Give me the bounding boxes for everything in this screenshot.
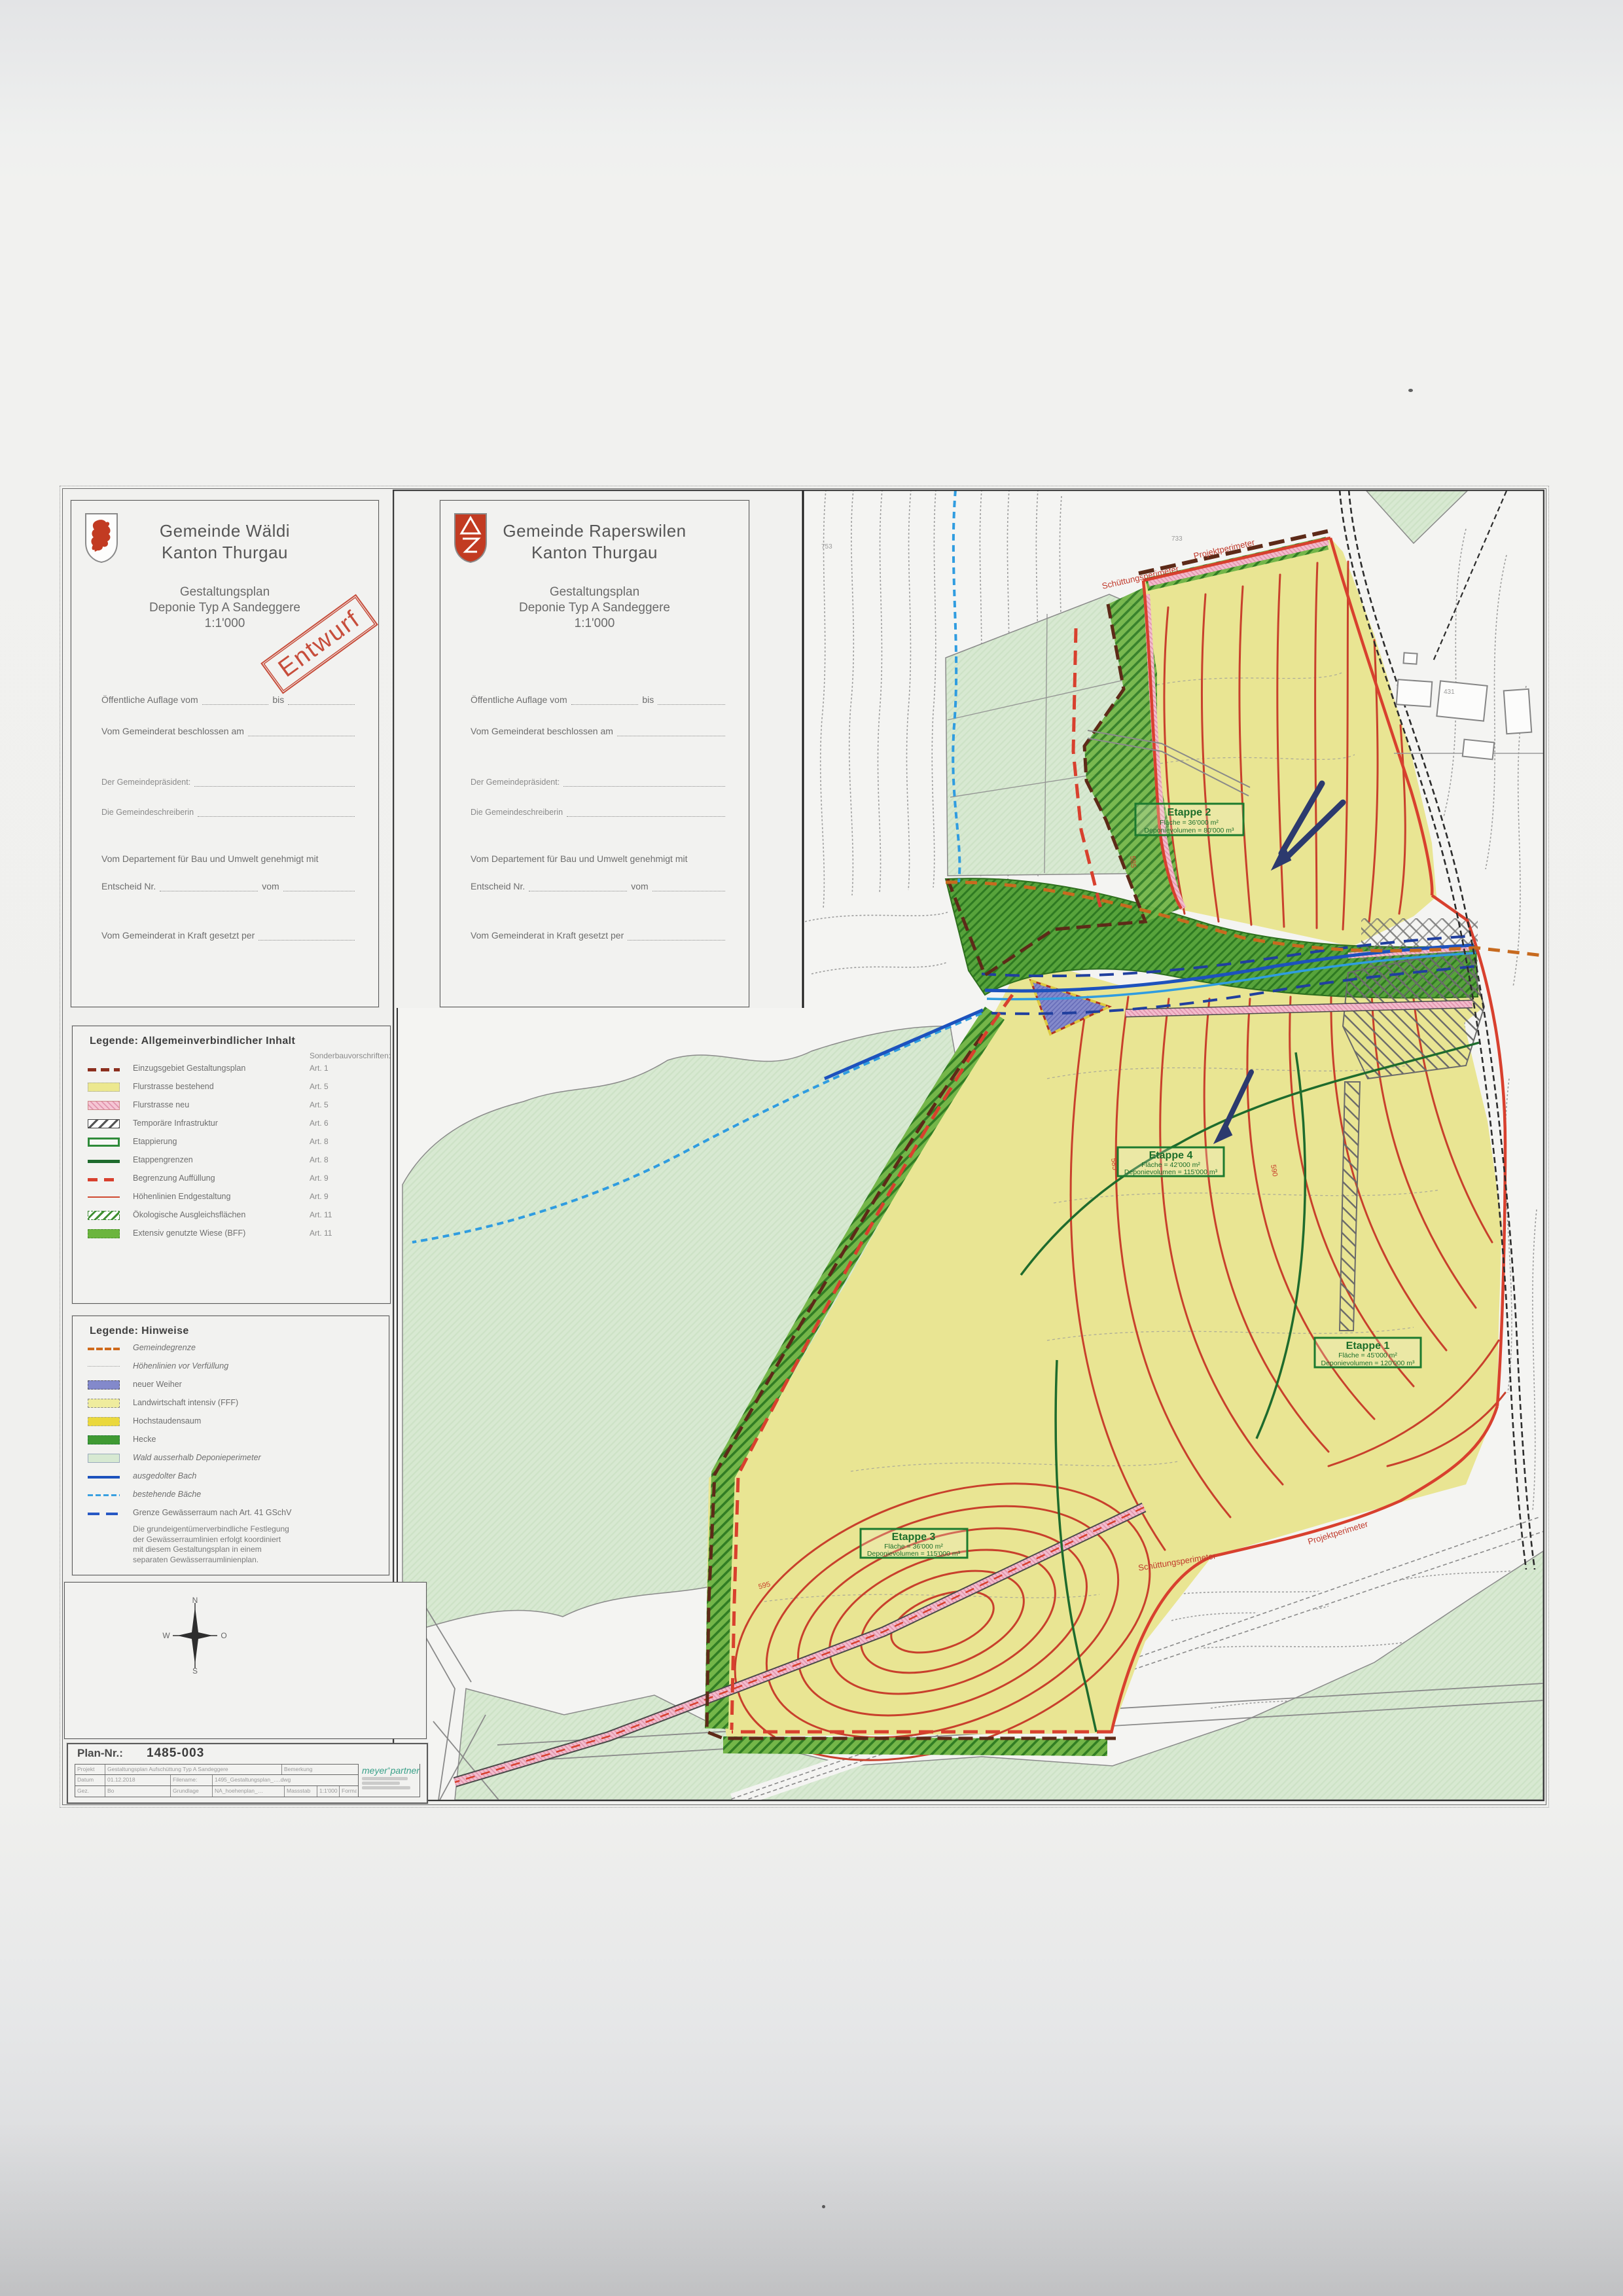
field-inkraft: Vom Gemeinderat in Kraft gesetzt per	[471, 930, 729, 941]
legend-art: Art. 8	[310, 1155, 329, 1164]
etappe-4-label: Etappe 4 Fläche = 42'000 m² Deponievolum…	[1118, 1147, 1224, 1176]
blue-long-dash-line-swatch	[88, 1513, 120, 1515]
plan-title: Gestaltungsplan Deponie Typ A Sandeggere…	[440, 584, 749, 632]
legend-item: Flurstrasse neu Art. 5	[73, 1100, 390, 1114]
table-cell: Datum	[75, 1775, 105, 1785]
field-beschlossen: Vom Gemeinderat beschlossen am	[471, 726, 729, 736]
green-fill-swatch	[88, 1229, 120, 1238]
red-dashed-line-swatch	[88, 1178, 120, 1181]
yellow-fill-swatch	[88, 1417, 120, 1426]
field-beschlossen: Vom Gemeinderat beschlossen am	[101, 726, 359, 736]
gemeinde-title: Gemeinde Raperswilen Kanton Thurgau	[440, 520, 749, 564]
legend-item: Landwirtschaft intensiv (FFF)	[73, 1397, 389, 1412]
blue-line-swatch	[88, 1476, 120, 1479]
legend-label: Höhenlinien Endgestaltung	[133, 1192, 230, 1201]
field-label: Vom Gemeinderat in Kraft gesetzt per	[471, 930, 624, 941]
legend-item: Höhenlinien Endgestaltung Art. 9	[73, 1191, 390, 1206]
legend-label: ausgedolter Bach	[133, 1471, 196, 1480]
legend-art: Art. 8	[310, 1137, 329, 1146]
legend-label: neuer Weiher	[133, 1380, 182, 1389]
plan-name: Deponie Typ A Sandeggere	[440, 600, 749, 616]
field-label: Entscheid Nr.	[471, 881, 525, 891]
table-cell: 1495_Gestaltungsplan_….dwg	[213, 1775, 357, 1785]
etappe-area: Fläche = 36'000 m²	[1160, 819, 1219, 827]
field-label: vom	[631, 881, 648, 891]
parcel-number: 431	[1444, 689, 1455, 696]
table-cell: Format	[340, 1786, 357, 1797]
etappe-name: Etappe 2	[1168, 807, 1211, 818]
plan-number-block: Plan-Nr.: 1485-003 Projekt Gestaltungspl…	[67, 1743, 428, 1804]
legend-item: Flurstrasse bestehend Art. 5	[73, 1081, 390, 1096]
field-inkraft: Vom Gemeinderat in Kraft gesetzt per	[101, 930, 359, 941]
etappe-volume: Deponievolumen = 115'000 m³	[867, 1550, 961, 1558]
note-line: Die grundeigentümerverbindliche Festlegu…	[133, 1524, 289, 1535]
legend-art: Art. 11	[310, 1229, 332, 1238]
legend-label: Etappengrenzen	[133, 1155, 193, 1164]
field-label: Vom Departement für Bau und Umwelt geneh…	[471, 853, 688, 864]
field-praesident: Der Gemeindepräsident:	[471, 778, 729, 787]
legend-column-header: Sonderbauvorschriften:	[310, 1051, 391, 1060]
legend-item: Grenze Gewässerraum nach Art. 41 GSchV	[73, 1507, 389, 1522]
plan-table-row: Datum 01.12.2018 Filename: 1495_Gestaltu…	[75, 1775, 359, 1786]
compass-n: N	[192, 1596, 198, 1605]
compass-box: N W O S	[64, 1582, 427, 1739]
scanned-plan-page: Schüttungsperimeter Projektperimeter Sch…	[0, 0, 1623, 2296]
legend-label: Gemeindegrenze	[133, 1343, 196, 1352]
field-label: Entscheid Nr.	[101, 881, 156, 891]
table-cell: NA_hoehenplan_…	[213, 1786, 285, 1797]
plan-nr-value: 1485-003	[147, 1746, 204, 1761]
etappe-area: Fläche = 45'000 m²	[1338, 1352, 1397, 1359]
field-label: Öffentliche Auflage vom	[471, 694, 567, 705]
parcel-number: 733	[1171, 535, 1183, 543]
table-cell: Gestaltungsplan Aufschüttung Typ A Sande…	[105, 1765, 282, 1774]
etappe-1-label: Etappe 1 Fläche = 45'000 m² Deponievolum…	[1315, 1338, 1421, 1367]
plan-nr-label: Plan-Nr.:	[77, 1747, 123, 1760]
etappe-volume: Deponievolumen = 115'000 m³	[1124, 1168, 1218, 1176]
legend-item: Extensiv genutzte Wiese (BFF) Art. 11	[73, 1228, 390, 1242]
etappe-3-label: Etappe 3 Fläche = 36'000 m² Deponievolum…	[861, 1529, 967, 1558]
logo-right: partner	[391, 1765, 419, 1776]
etappe-name: Etappe 3	[892, 1532, 936, 1543]
etappe-name: Etappe 1	[1346, 1340, 1390, 1352]
light-blue-dashed-line-swatch	[88, 1494, 120, 1496]
plan-table-row: Gez. Bo Grundlage NA_hoehenplan_… Massst…	[75, 1786, 359, 1797]
legend-label: Temporäre Infrastruktur	[133, 1119, 218, 1128]
yellow-fill-swatch	[88, 1083, 120, 1092]
scan-speck	[1408, 389, 1413, 392]
field-auflage: Öffentliche Auflage vombis	[471, 694, 729, 705]
legend-item: Etappierung Art. 8	[73, 1136, 390, 1151]
firm-logo: meyer+partner	[362, 1765, 416, 1776]
field-label: Vom Gemeinderat in Kraft gesetzt per	[101, 930, 255, 941]
legend-label: Flurstrasse bestehend	[133, 1082, 214, 1091]
title-block-waeldi: Gemeinde Wäldi Kanton Thurgau Gestaltung…	[71, 500, 379, 1007]
pink-hatch-swatch	[88, 1101, 120, 1110]
legend-item: Wald ausserhalb Deponieperimeter	[73, 1452, 389, 1467]
field-label: Der Gemeindepräsident:	[101, 778, 190, 787]
legend-label: Landwirtschaft intensiv (FFF)	[133, 1398, 238, 1407]
field-label: bis	[272, 694, 284, 705]
legend-label: bestehende Bäche	[133, 1490, 201, 1499]
field-departement: Vom Departement für Bau und Umwelt geneh…	[471, 853, 729, 864]
legend-label: Flurstrasse neu	[133, 1100, 189, 1109]
dark-red-dashed-line-swatch	[88, 1068, 120, 1071]
legend-label: Höhenlinien vor Verfüllung	[133, 1361, 228, 1371]
legend-item: Einzugsgebiet Gestaltungsplan Art. 1	[73, 1063, 390, 1077]
legend-art: Art. 9	[310, 1174, 329, 1183]
green-fill-swatch	[88, 1435, 120, 1444]
orange-line-swatch	[88, 1348, 120, 1350]
plan-type: Gestaltungsplan	[71, 584, 378, 600]
legend-label: Hochstaudensaum	[133, 1416, 201, 1426]
legend-art: Art. 5	[310, 1100, 329, 1109]
table-cell: Grundlage	[171, 1786, 213, 1797]
table-cell: Gez.	[75, 1786, 105, 1797]
legend-label: Wald ausserhalb Deponieperimeter	[133, 1453, 261, 1462]
green-outline-swatch	[88, 1138, 120, 1147]
legend-item: Hecke	[73, 1434, 389, 1448]
field-entscheid: Entscheid Nr.vom	[471, 881, 729, 891]
field-label: bis	[642, 694, 654, 705]
note-line: der Gewässerraumlinien erfolgt koordinie…	[133, 1535, 289, 1545]
legend-art: Art. 9	[310, 1192, 329, 1201]
red-thin-line-swatch	[88, 1196, 120, 1198]
legend-item: Hochstaudensaum	[73, 1416, 389, 1430]
field-label: Öffentliche Auflage vom	[101, 694, 198, 705]
note-line: separaten Gewässerraumlinienplan.	[133, 1555, 289, 1566]
legend-item: Höhenlinien vor Verfüllung	[73, 1361, 389, 1375]
legend-label: Grenze Gewässerraum nach Art. 41 GSchV	[133, 1508, 291, 1517]
legend-art: Art. 11	[310, 1210, 332, 1219]
legend-art: Art. 6	[310, 1119, 329, 1128]
field-label: Der Gemeindepräsident:	[471, 778, 560, 787]
table-cell: 01.12.2018	[105, 1775, 171, 1785]
legend-note: Die grundeigentümerverbindliche Festlegu…	[133, 1524, 289, 1565]
blue-violet-fill-swatch	[88, 1380, 120, 1390]
table-cell: 1:1'000	[317, 1786, 340, 1797]
field-entscheid: Entscheid Nr.vom	[101, 881, 359, 891]
legend-art: Art. 1	[310, 1064, 329, 1073]
legend-label: Einzugsgebiet Gestaltungsplan	[133, 1064, 245, 1073]
legend-art: Art. 5	[310, 1082, 329, 1091]
legend-item: Ökologische Ausgleichsflächen Art. 11	[73, 1210, 390, 1224]
table-cell: Bemerkung	[282, 1765, 357, 1774]
field-label: Die Gemeindeschreiberin	[471, 808, 563, 817]
illegible-text-bar	[362, 1786, 410, 1789]
legend-item: Etappengrenzen Art. 8	[73, 1155, 390, 1169]
field-departement: Vom Departement für Bau und Umwelt geneh…	[101, 853, 359, 864]
field-label: vom	[262, 881, 279, 891]
scan-shadow-band	[0, 2121, 1623, 2296]
legend-hints: Legende: Hinweise Gemeindegrenze Höhenli…	[72, 1316, 389, 1575]
legend-label: Extensiv genutzte Wiese (BFF)	[133, 1229, 245, 1238]
etappe-volume: Deponievolumen = 120'000 m³	[1321, 1359, 1415, 1367]
table-cell: Projekt	[75, 1765, 105, 1774]
legend-item: neuer Weiher	[73, 1379, 389, 1393]
legend-item: Temporäre Infrastruktur Art. 6	[73, 1118, 390, 1132]
field-label: Vom Departement für Bau und Umwelt geneh…	[101, 853, 319, 864]
field-schreiberin: Die Gemeindeschreiberin	[101, 808, 359, 817]
logo-column: meyer+partner	[359, 1764, 420, 1797]
legend-item: Begrenzung Auffüllung Art. 9	[73, 1173, 390, 1187]
etappe-name: Etappe 4	[1149, 1150, 1193, 1161]
legend-title: Legende: Allgemeinverbindlicher Inhalt	[90, 1035, 295, 1047]
contour-label: 585	[1128, 855, 1137, 868]
gemeinde-title: Gemeinde Wäldi Kanton Thurgau	[71, 520, 378, 564]
pale-green-fill-swatch	[88, 1454, 120, 1463]
field-label: Vom Gemeinderat beschlossen am	[101, 726, 244, 736]
gemeinde-name: Gemeinde Raperswilen	[440, 520, 749, 542]
field-praesident: Der Gemeindepräsident:	[101, 778, 359, 787]
kanton-name: Kanton Thurgau	[440, 542, 749, 564]
kanton-name: Kanton Thurgau	[71, 542, 378, 564]
compass-rose-icon: N W O S	[156, 1596, 234, 1675]
legend-label: Begrenzung Auffüllung	[133, 1174, 215, 1183]
field-schreiberin: Die Gemeindeschreiberin	[471, 808, 729, 817]
table-cell: Filename:	[171, 1775, 213, 1785]
title-block-raperswilen: Gemeinde Raperswilen Kanton Thurgau Gest…	[440, 500, 749, 1007]
legend-item: Gemeindegrenze	[73, 1342, 389, 1357]
plan-table-row: Projekt Gestaltungsplan Aufschüttung Typ…	[75, 1764, 359, 1775]
note-line: mit diesem Gestaltungsplan in einem	[133, 1545, 289, 1555]
plan-type: Gestaltungsplan	[440, 584, 749, 600]
illegible-text-bar	[362, 1777, 408, 1780]
legend-label: Ökologische Ausgleichsflächen	[133, 1210, 245, 1219]
legend-label: Etappierung	[133, 1137, 177, 1146]
grey-hatch-swatch	[88, 1119, 120, 1128]
table-cell: Massstab	[285, 1786, 317, 1797]
grey-dotted-line-swatch	[88, 1366, 120, 1367]
legend-general: Legende: Allgemeinverbindlicher Inhalt S…	[72, 1026, 391, 1304]
compass-s: S	[192, 1666, 198, 1675]
logo-left: meyer	[362, 1765, 387, 1776]
pale-yellow-fill-swatch	[88, 1399, 120, 1408]
legend-label: Hecke	[133, 1435, 156, 1444]
field-auflage: Öffentliche Auflage vombis	[101, 694, 359, 705]
compass-w: W	[162, 1631, 170, 1640]
green-hatch-swatch	[88, 1211, 120, 1220]
plan-scale: 1:1'000	[440, 616, 749, 632]
field-label: Vom Gemeinderat beschlossen am	[471, 726, 613, 736]
legend-title: Legende: Hinweise	[90, 1325, 189, 1337]
etappe-volume: Deponievolumen = 80'000 m³	[1144, 827, 1234, 834]
dark-green-line-swatch	[88, 1160, 120, 1163]
gemeinde-name: Gemeinde Wäldi	[71, 520, 378, 542]
legend-item: bestehende Bäche	[73, 1489, 389, 1503]
table-cell: Bo	[105, 1786, 171, 1797]
field-label: Die Gemeindeschreiberin	[101, 808, 194, 817]
legend-item: ausgedolter Bach	[73, 1471, 389, 1485]
parcel-number: 753	[821, 543, 832, 550]
illegible-text-bar	[362, 1782, 400, 1785]
compass-o: O	[221, 1631, 226, 1640]
etappe-2-label: Etappe 2 Fläche = 36'000 m² Deponievolum…	[1135, 804, 1243, 835]
